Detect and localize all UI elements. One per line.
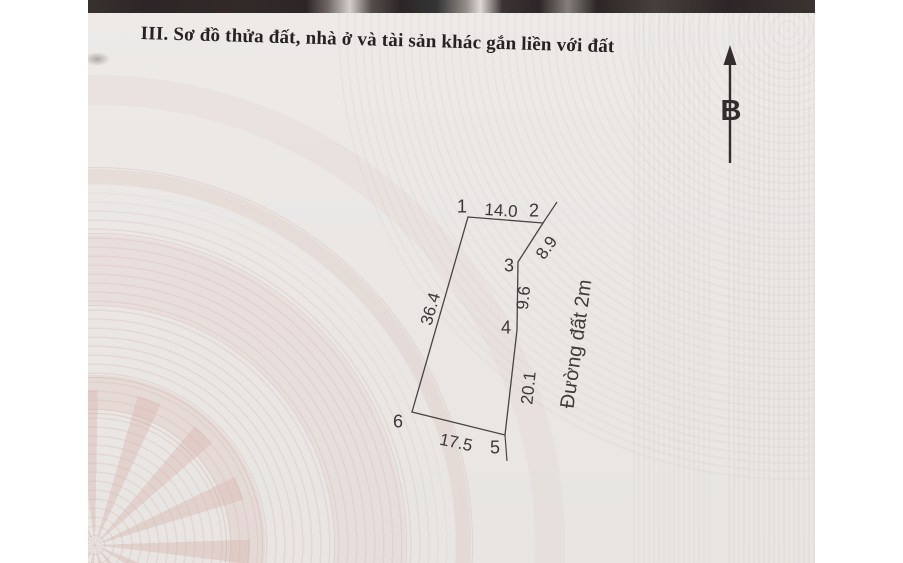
edge-length-label: 14.0 [484, 200, 518, 222]
north-indicator-label: B [721, 97, 742, 126]
drum-pattern-band [88, 375, 265, 563]
vertex-number-label: 1 [457, 197, 467, 218]
drum-pattern-band [88, 235, 405, 563]
drum-pattern-band [88, 75, 565, 563]
vertex-number-label: 5 [490, 438, 500, 459]
drum-pattern-rings [88, 55, 585, 563]
vertex-number-label: 3 [504, 256, 514, 277]
edge-length-label: 9.6 [513, 285, 535, 311]
road-name-label: Đường đất 2m [557, 278, 598, 410]
edge-length-label: 20.1 [517, 370, 540, 405]
photo-top-edge [88, 0, 815, 13]
drum-pattern-rim [88, 233, 407, 563]
listing-photo-canvas: III. Sơ đồ thửa đất, nhà ở và tài sản kh… [0, 0, 903, 563]
paper-edge-smudge [88, 52, 110, 66]
paper-moire-band [633, 0, 713, 563]
section-title: III. Sơ đồ thửa đất, nhà ở và tài sản kh… [140, 23, 700, 61]
vertex-number-label: 4 [501, 318, 511, 339]
drum-pattern-rim [88, 167, 473, 563]
drum-pattern-rim [88, 413, 227, 563]
drum-pattern-rim [88, 377, 263, 563]
document-photo: III. Sơ đồ thửa đất, nhà ở và tài sản kh… [88, 0, 815, 563]
paper-moire-band [728, 0, 815, 563]
drum-pattern-rim [88, 305, 335, 563]
vertex-number-label: 2 [529, 201, 539, 222]
vertex-number-label: 6 [393, 412, 403, 433]
drum-pattern-star [88, 390, 250, 563]
drum-pattern-band [88, 169, 471, 563]
